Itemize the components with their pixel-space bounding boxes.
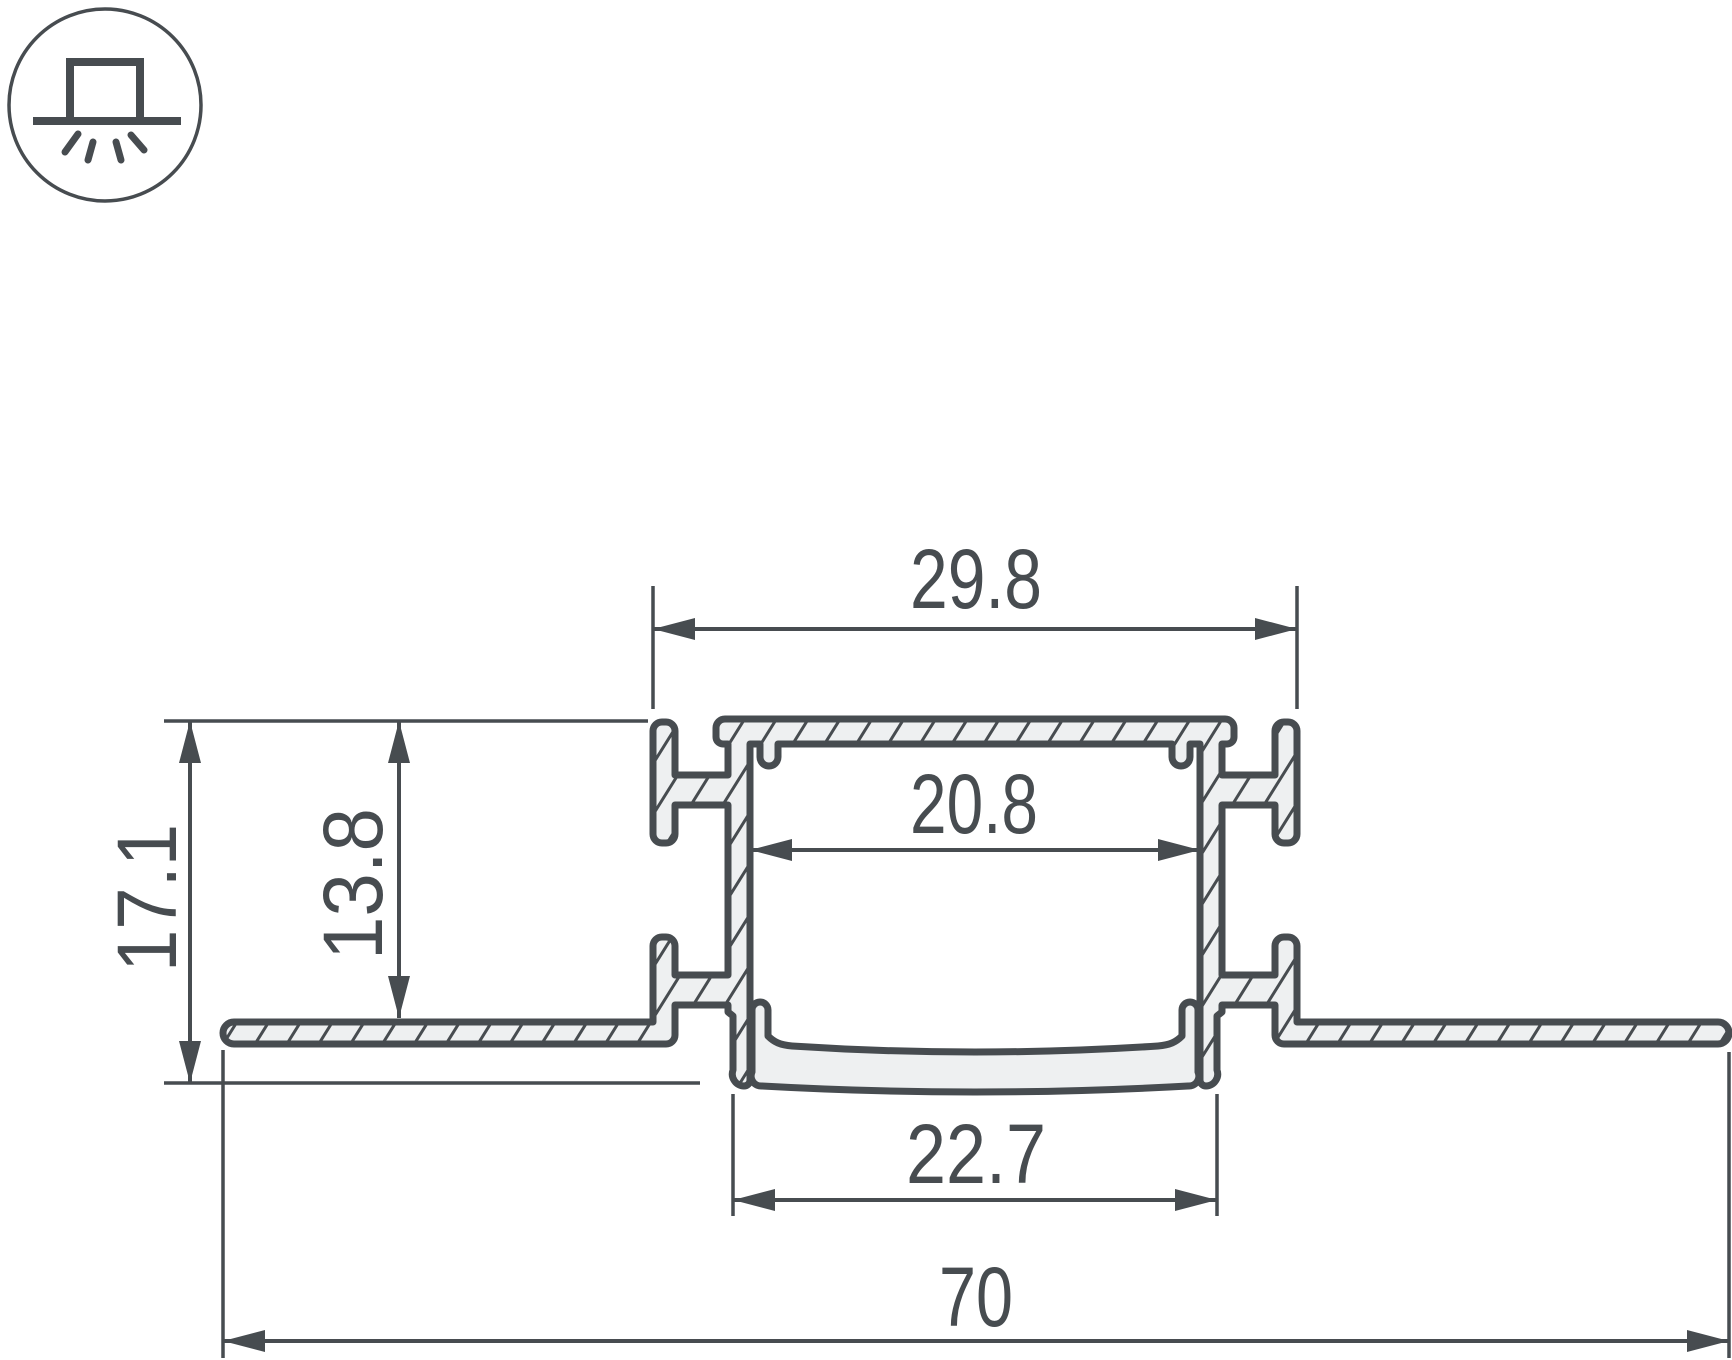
- icon-circle: [9, 9, 201, 201]
- technical-drawing: 29.8 20.8 13.8 17.1 22.7 70: [0, 0, 1732, 1360]
- dimension-label: 29.8: [910, 532, 1042, 626]
- light-ray-icon: [116, 142, 121, 160]
- dimension-label: 20.8: [910, 757, 1038, 851]
- light-ray-icon: [88, 142, 93, 160]
- light-ray-icon: [65, 134, 78, 152]
- dimension-overall-width: 70: [223, 1050, 1729, 1358]
- dimension-inner-width: 20.8: [750, 757, 1200, 851]
- recessed-mount-icon: [9, 9, 201, 201]
- dimension-label: 22.7: [906, 1107, 1046, 1201]
- icon-light-rays: [65, 134, 144, 160]
- dimension-label: 17.1: [100, 824, 194, 972]
- icon-profile-square: [70, 62, 140, 121]
- dimension-label: 70: [939, 1250, 1013, 1344]
- light-ray-icon: [131, 135, 144, 150]
- dimension-bottom-width: 22.7: [733, 1094, 1217, 1216]
- drawing-page: 29.8 20.8 13.8 17.1 22.7 70: [0, 0, 1732, 1360]
- dimension-top-width: 29.8: [653, 532, 1297, 709]
- dimension-label: 13.8: [306, 808, 400, 960]
- diffuser-cover: [751, 1002, 1199, 1092]
- dimension-inner-height: 13.8: [164, 721, 648, 1018]
